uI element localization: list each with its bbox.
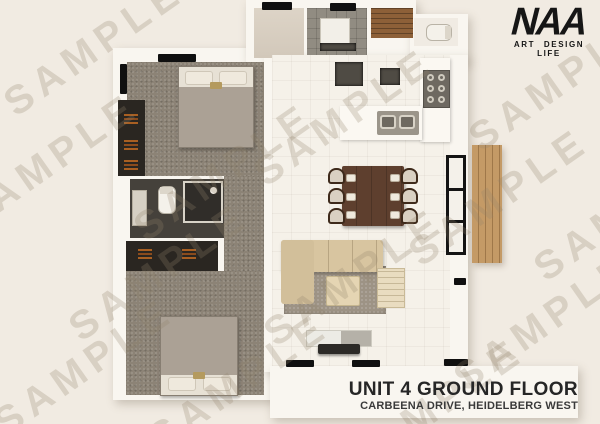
tv-icon xyxy=(318,344,360,354)
dining-chair-icon xyxy=(328,188,345,204)
toilet-icon xyxy=(426,24,452,41)
deck-door xyxy=(446,155,466,255)
armchair-icon xyxy=(377,268,405,308)
sink-basin xyxy=(399,115,415,129)
pillow-icon xyxy=(203,377,231,391)
place-setting-icon xyxy=(390,193,400,201)
pillow-icon xyxy=(219,71,247,85)
dining-chair-icon xyxy=(401,168,418,184)
place-setting-icon xyxy=(390,174,400,182)
hallway-floor xyxy=(224,176,264,272)
sink-basin xyxy=(380,115,396,129)
toilet-icon xyxy=(158,186,176,214)
door-mullion xyxy=(449,220,463,223)
sink-icon xyxy=(377,111,419,135)
pillow-icon xyxy=(185,71,213,85)
dining-chair-icon xyxy=(328,208,345,224)
vanity-icon xyxy=(132,190,147,226)
cushion-icon xyxy=(193,372,205,379)
place-setting-icon xyxy=(346,193,356,201)
dining-chair-icon xyxy=(401,208,418,224)
window-icon xyxy=(454,278,466,285)
sofa-chaise xyxy=(281,240,314,304)
title-block: UNIT 4 GROUND FLOOR CARBEENA DRIVE, HEID… xyxy=(349,380,578,412)
burner-icon xyxy=(438,96,445,103)
cooktop-icon xyxy=(423,70,450,108)
logo-mark: NAA xyxy=(507,4,590,40)
burner-icon xyxy=(427,85,434,92)
burner-icon xyxy=(438,85,445,92)
clothes-hanger-icon xyxy=(138,249,152,251)
dining-chair-icon xyxy=(328,168,345,184)
place-setting-icon xyxy=(390,211,400,219)
plan-title: UNIT 4 GROUND FLOOR xyxy=(349,380,578,400)
timber-porch xyxy=(371,8,413,38)
kitchen-appliance-bench xyxy=(335,62,363,86)
window-icon xyxy=(444,359,468,366)
clothes-hanger-icon xyxy=(124,160,138,162)
bed-icon xyxy=(178,66,254,148)
window-icon xyxy=(120,64,127,94)
bed-icon xyxy=(160,316,238,396)
burner-icon xyxy=(438,74,445,81)
window-icon xyxy=(352,360,380,367)
cushion-icon xyxy=(210,82,222,89)
clothes-hanger-icon xyxy=(182,249,196,251)
ottoman-icon xyxy=(326,276,360,306)
window-icon xyxy=(286,360,314,367)
washing-machine-icon xyxy=(320,18,350,45)
cistern xyxy=(445,26,451,39)
clothes-hanger-icon xyxy=(124,114,138,116)
pillow-icon xyxy=(168,377,196,391)
studio-logo: NAA ART DESIGN LIFE xyxy=(500,5,598,58)
burner-icon xyxy=(427,96,434,103)
door-mullion xyxy=(449,188,463,191)
floorplan-poster: NAA ART DESIGN LIFE UNIT 4 GROUND FLOOR … xyxy=(0,0,600,424)
shower-icon xyxy=(183,181,223,223)
shower-head-icon xyxy=(210,187,217,194)
window-icon xyxy=(330,3,356,11)
cistern xyxy=(160,187,173,194)
plan-subtitle: CARBEENA DRIVE, HEIDELBERG WEST xyxy=(349,400,578,412)
place-setting-icon xyxy=(346,211,356,219)
window-icon xyxy=(262,2,292,10)
dining-table-icon xyxy=(342,166,404,226)
dining-chair-icon xyxy=(401,188,418,204)
laundry-bench xyxy=(320,43,356,51)
entry-floor xyxy=(254,8,304,58)
burner-icon xyxy=(427,74,434,81)
timber-deck xyxy=(472,145,502,263)
bedroom-2-robe xyxy=(126,241,218,271)
place-setting-icon xyxy=(346,174,356,182)
bedroom-1-wardrobe xyxy=(118,100,145,176)
window-icon xyxy=(158,54,196,62)
clothes-hanger-icon xyxy=(124,140,138,142)
watermark-text: SAMPLE xyxy=(526,134,600,291)
kitchen-appliance-bench xyxy=(380,68,400,85)
